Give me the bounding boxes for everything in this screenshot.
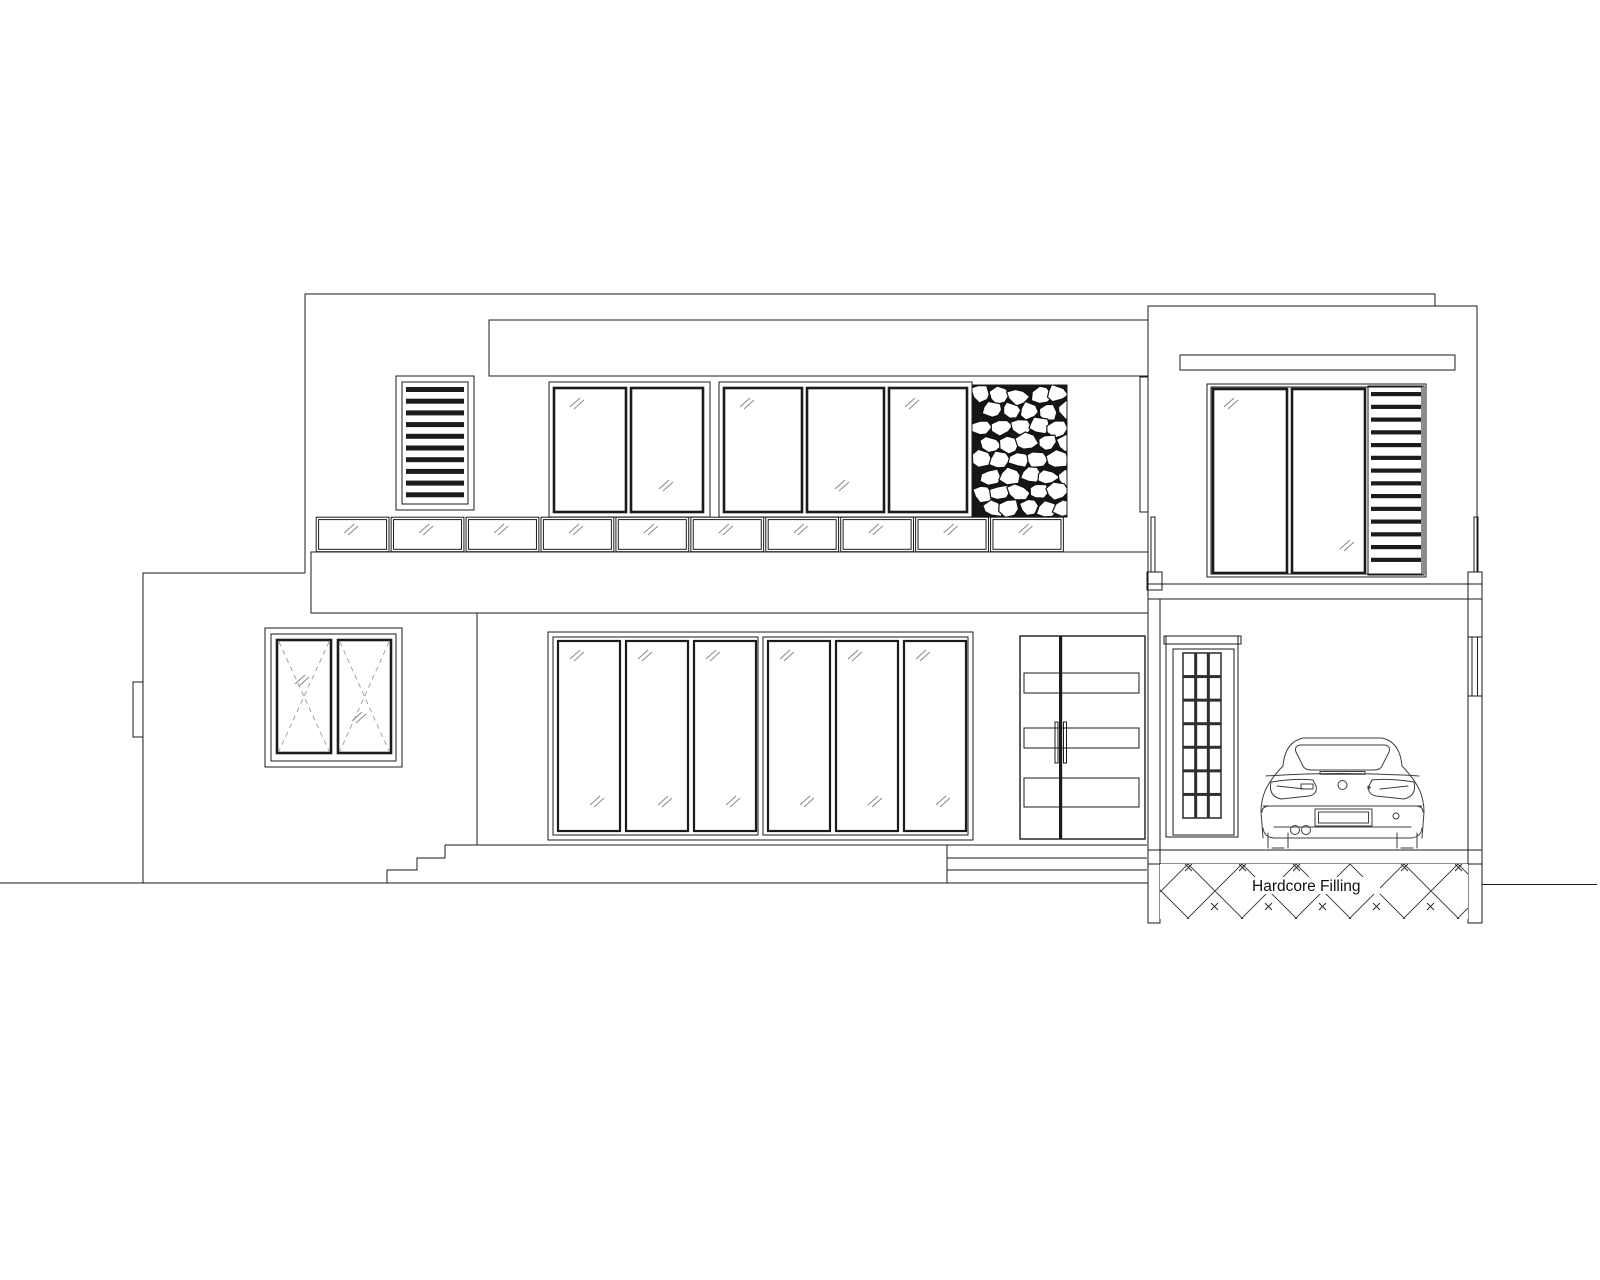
car: [1261, 738, 1424, 848]
car-wheel-left: [1268, 833, 1288, 848]
right-steps: [947, 845, 1147, 883]
floor-slab-band: [311, 552, 1148, 613]
garage-right-wall-window: [1468, 637, 1482, 696]
garage-right-wall-section: [1468, 696, 1482, 923]
hardcore-filling-label: Hardcore Filling: [1252, 878, 1361, 895]
entry-door: [1020, 636, 1145, 839]
garage-upper-window: [1207, 384, 1426, 577]
garage-left-wall-section: [1148, 599, 1160, 923]
hardcore-filling: Hardcore Filling: [1160, 864, 1468, 919]
upper-louver-slats: [406, 387, 464, 497]
stone-cladding: [969, 384, 1079, 517]
left-steps: [387, 845, 445, 883]
terrace-and-steps: [387, 845, 1147, 883]
entry-door-center-stile: [1059, 636, 1062, 839]
upper-window-group-b: [719, 382, 972, 517]
car-taillight-right: [1369, 779, 1415, 799]
car-wheel-right: [1397, 833, 1417, 848]
rear-wall-sliver: [1140, 377, 1148, 512]
garage-floor-slab: [1148, 850, 1482, 864]
upper-window-panes: [554, 388, 967, 512]
elevation-svg: Hardcore Filling: [0, 0, 1600, 1280]
car-spoiler-lip: [1320, 772, 1365, 775]
garage-ceiling-slab: [1148, 584, 1482, 599]
elevation-drawing: Hardcore Filling: [0, 0, 1600, 1280]
car-rear-window: [1296, 745, 1390, 770]
upper-louver-window: [396, 376, 474, 510]
garage-right-wall-concrete: [1468, 572, 1482, 637]
rail-post-base: [1147, 572, 1162, 590]
garage-block: Hardcore Filling: [1147, 306, 1482, 923]
upper-window-group-a: [549, 382, 710, 517]
garage-glazed-door: [1164, 636, 1241, 837]
left-wing-window: [265, 628, 402, 767]
wall-utility-box: [133, 682, 143, 737]
car-emblem: [1338, 781, 1347, 790]
rail-post-left: [1151, 517, 1155, 572]
ground-floor-windows: [548, 632, 973, 840]
upper-fascia-band: [489, 320, 1148, 376]
balcony-glass-row: [316, 517, 1063, 552]
garage-louver-slats: [1371, 392, 1421, 562]
garage-stipple-band: [1180, 355, 1455, 370]
car-bumper: [1262, 806, 1423, 838]
